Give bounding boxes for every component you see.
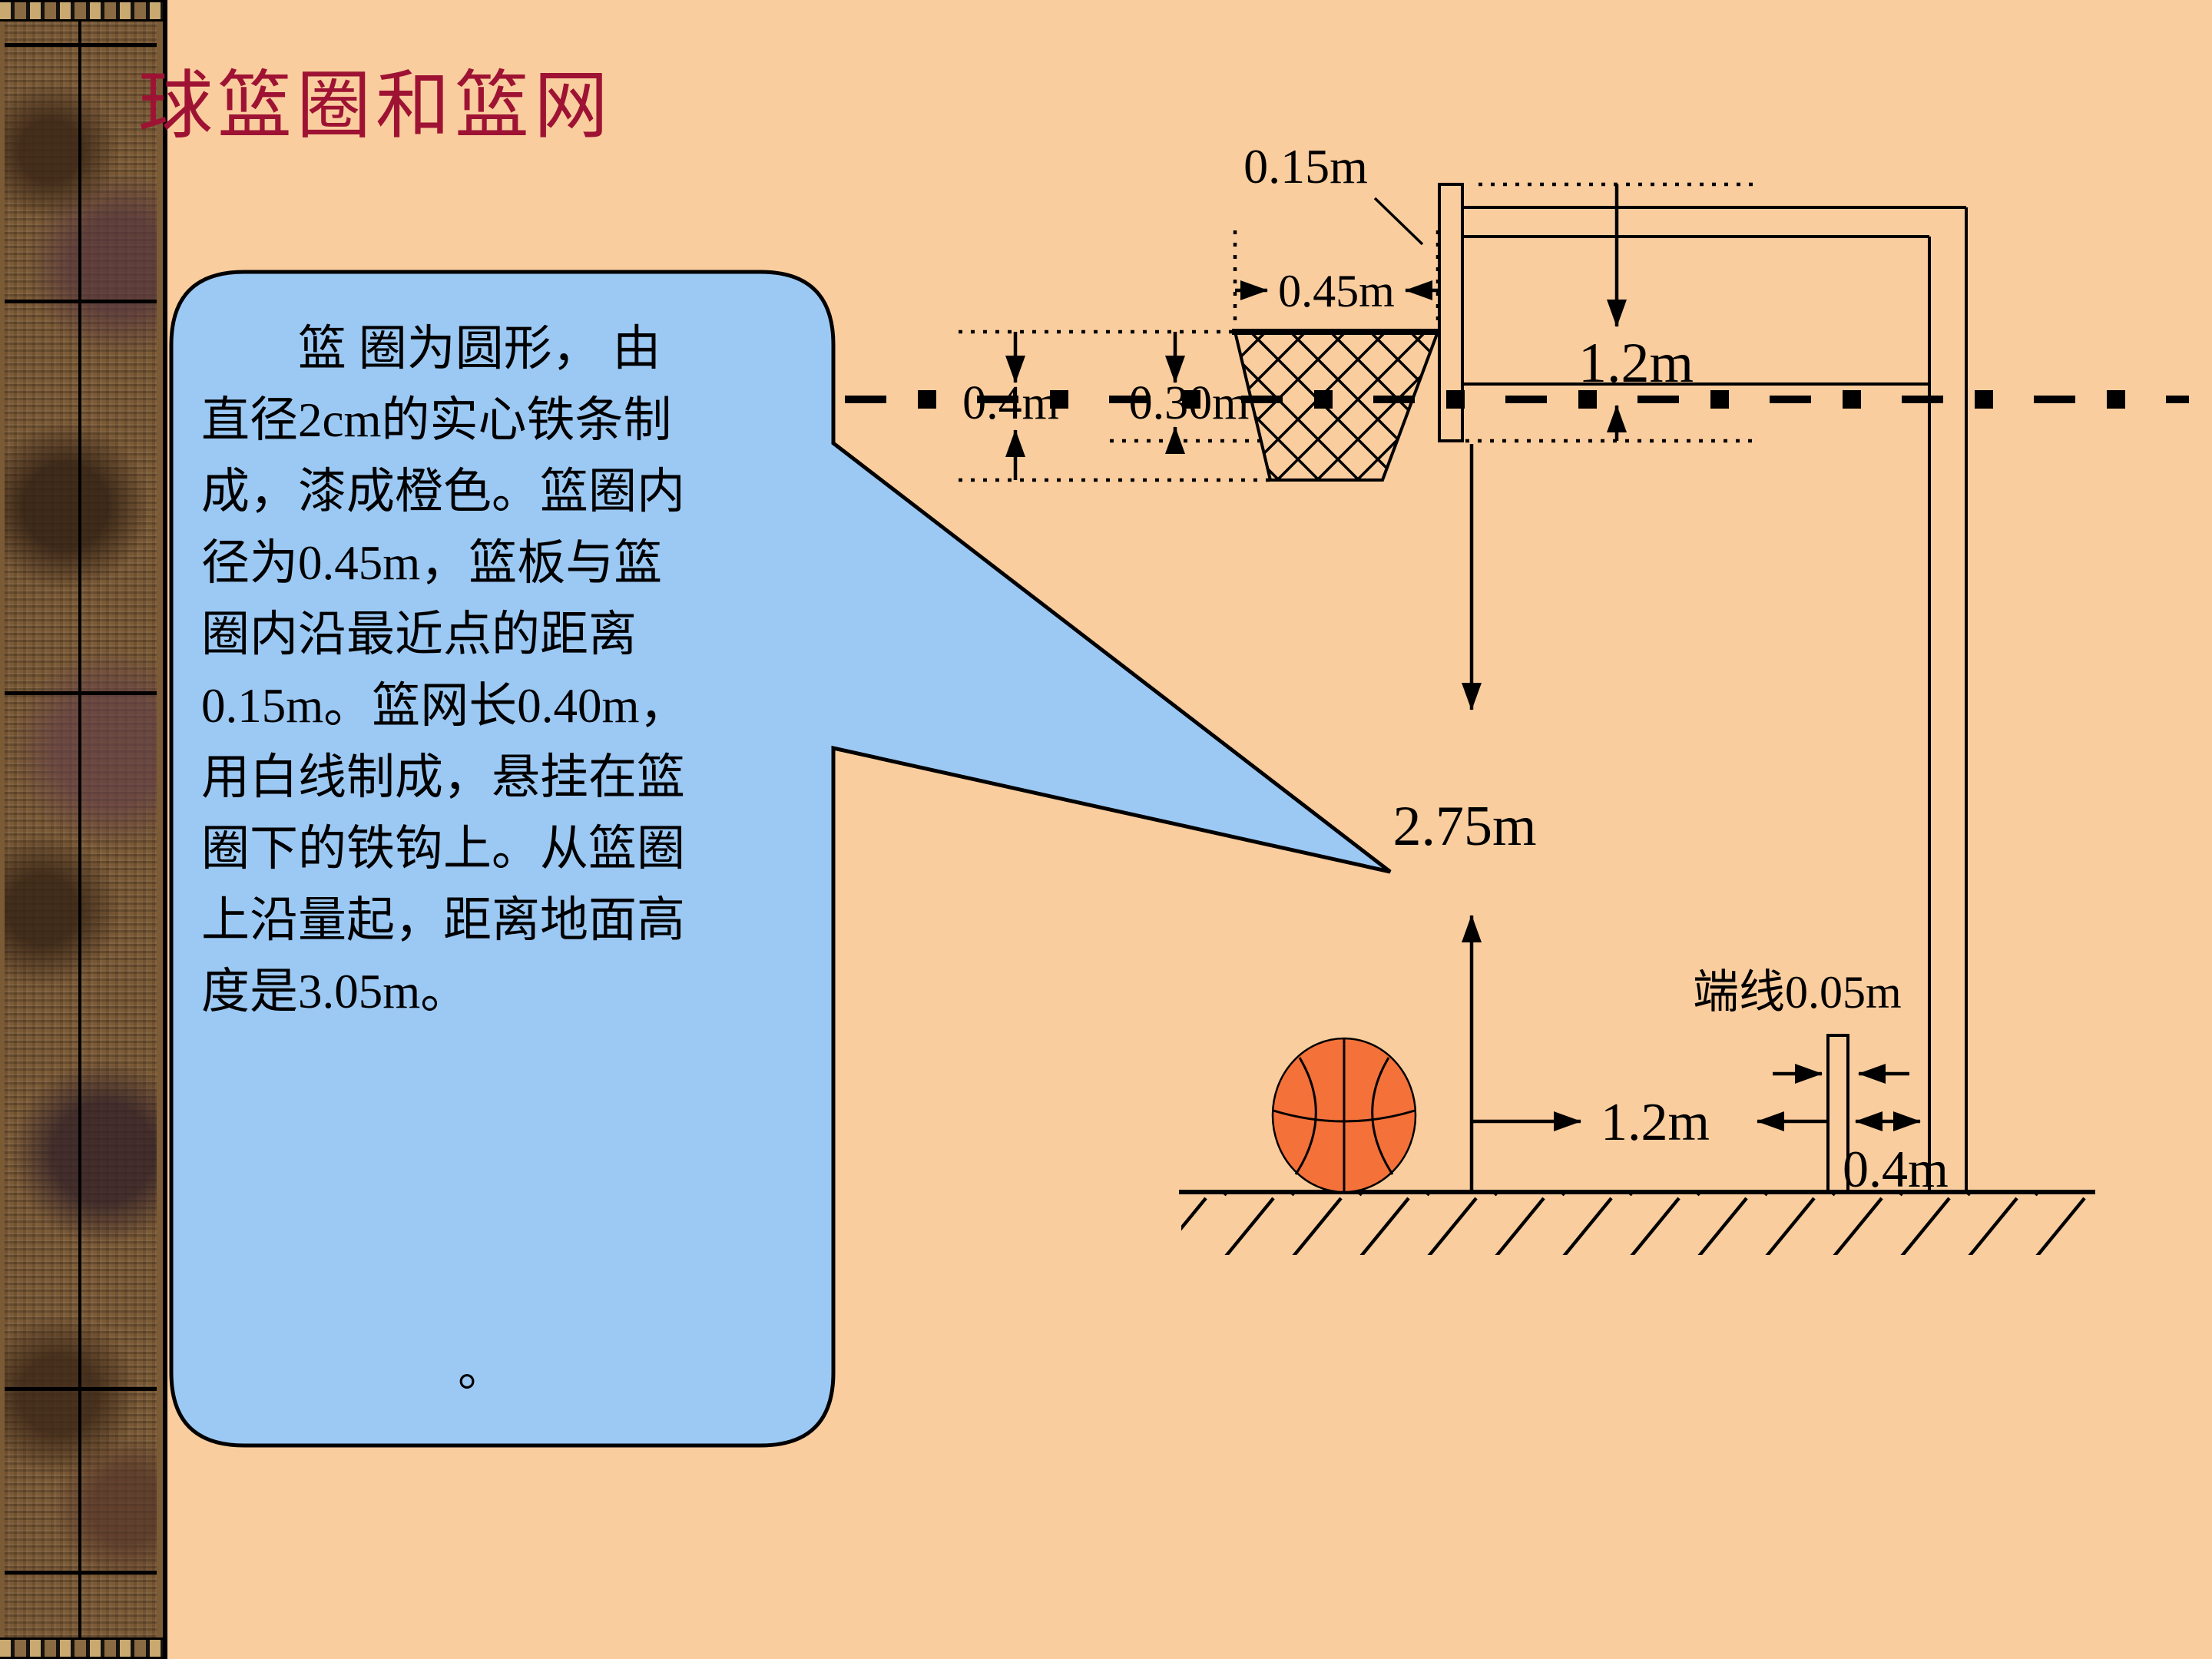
label-backboard-height: 1.2m (1578, 332, 1694, 395)
bubble-line: 度是3.05m。 (201, 956, 839, 1028)
bubble-line: 径为0.45m，篮板与篮 (201, 528, 839, 599)
bubble-line: 圈内沿最近点的距离 (201, 599, 839, 671)
bubble-line: 直径2cm的实心铁条制 (201, 385, 839, 456)
label-endline: 端线0.05m (1693, 967, 1902, 1018)
basketball (1273, 1038, 1416, 1192)
label-rim-offset: 0.30m (1129, 377, 1250, 429)
bubble-line: 用白线制成，悬挂在篮 (201, 742, 839, 813)
support-structure (1439, 184, 1966, 1192)
bubble-line: 0.15m。篮网长0.40m， (201, 671, 839, 742)
bubble-line: 上沿量起，距离地面高 (201, 885, 839, 956)
board-gap-leader-line (1375, 198, 1422, 244)
bubble-line: 成，漆成橙色。篮圈内 (201, 456, 839, 528)
basket-net (1235, 332, 1438, 480)
bubble-footnote-period: 。 (458, 1330, 505, 1399)
label-post-pole-gap: 0.4m (1843, 1140, 1949, 1198)
bubble-line: 圈下的铁钩上。从篮圈 (201, 813, 839, 885)
label-endline-distance: 1.2m (1601, 1093, 1710, 1152)
label-board-rim-gap: 0.15m (1243, 139, 1368, 194)
label-rim-diameter: 0.45m (1278, 266, 1395, 316)
bubble-line: 篮 圈为圆形， 由 (201, 313, 839, 385)
slide-canvas: 球篮圈和篮网 (0, 0, 2212, 1659)
speech-bubble-text: 篮 圈为圆形， 由 直径2cm的实心铁条制 成，漆成橙色。篮圈内 径为0.45m… (201, 313, 839, 1028)
label-net-length: 0.4m (962, 377, 1059, 429)
label-post-height: 2.75m (1392, 795, 1536, 858)
ground-hatching (1181, 1194, 2095, 1255)
